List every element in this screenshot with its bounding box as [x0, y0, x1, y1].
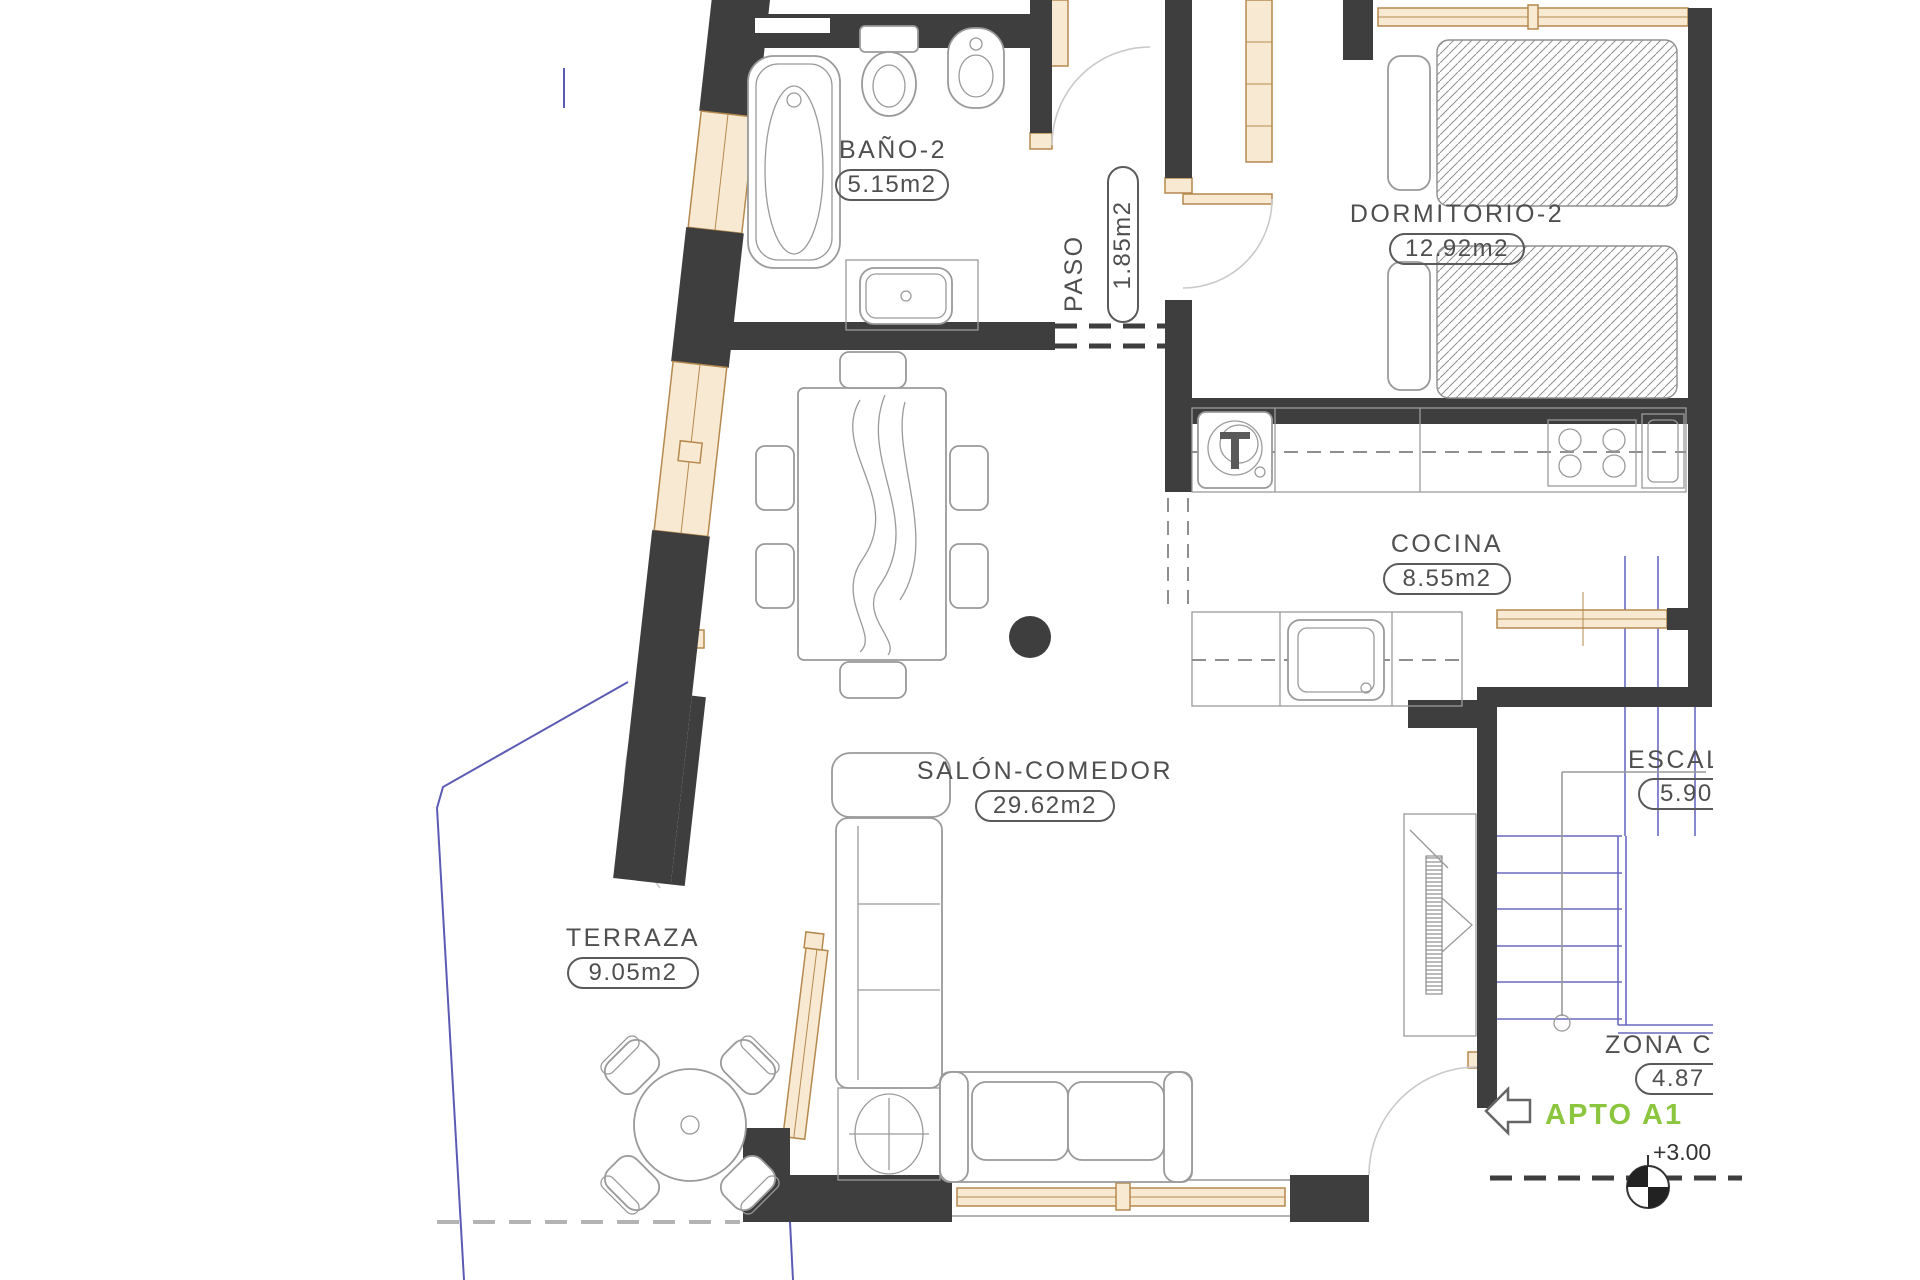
burner: [1603, 429, 1625, 451]
level-mark-text: +3.00: [1653, 1139, 1711, 1165]
wardrobe: [1246, 0, 1272, 162]
corner-table: [838, 1088, 940, 1180]
window-mullion: [1116, 1183, 1130, 1210]
column: [1009, 616, 1051, 658]
room-area-zona-comun: 4.87: [1652, 1065, 1705, 1092]
room-area-cocina: 8.55m2: [1402, 565, 1491, 592]
room-area-escalera: 5.90: [1660, 780, 1713, 807]
dining-table: [798, 388, 946, 660]
level-benchmark: +3.00: [1627, 1139, 1711, 1208]
room-label-dormitorio2: DORMITORIO-2: [1350, 200, 1564, 228]
wall-stair-north: [1477, 687, 1708, 707]
room-label-cocina: COCINA: [1391, 530, 1503, 558]
dining-chair: [756, 544, 794, 608]
wall-stub-north: [1343, 0, 1373, 60]
toilet-tank: [860, 26, 918, 52]
bed: [1388, 246, 1677, 398]
benchmark-quadrant: [1648, 1187, 1669, 1208]
wall-east: [1688, 8, 1712, 707]
dining-chair: [950, 544, 988, 608]
washer-detail: [1231, 437, 1239, 469]
apartment-label: APTO A1: [1545, 1099, 1683, 1131]
loveseat: [940, 1072, 1192, 1182]
tv-unit: [1404, 814, 1476, 1036]
dining-chair: [840, 352, 906, 388]
wall-stair-west: [1477, 687, 1497, 1108]
sink-unit: [1288, 620, 1384, 700]
basin-outer: [860, 268, 952, 324]
washing-machine: [1198, 412, 1272, 488]
pillow: [1388, 56, 1430, 190]
room-label-paso-text: PASO: [1060, 234, 1088, 312]
bathtub: [748, 56, 840, 268]
wall-cocina-south-stub: [1408, 700, 1478, 728]
wall-cocina-west: [1165, 300, 1192, 492]
burner: [1559, 429, 1581, 451]
room-label-paso: PASO: [1060, 234, 1088, 312]
room-area-dormitorio2: 12.92m2: [1405, 235, 1509, 262]
door-arc-entrance: [1369, 1067, 1477, 1175]
wall-bano-east: [1030, 0, 1052, 133]
room-label-escalera: ESCAL: [1628, 746, 1722, 774]
window-slider: [678, 441, 702, 463]
bathtub-outer: [748, 56, 840, 268]
room-label-terraza: TERRAZA: [566, 924, 700, 952]
table-top: [798, 388, 946, 660]
boundary-tick-bottom: [790, 1222, 793, 1280]
dining-chair: [950, 446, 988, 510]
terrace-table: [634, 1069, 746, 1181]
terrace-furniture: [597, 1032, 784, 1219]
door-leaf: [1183, 194, 1272, 204]
wall-niche: [755, 18, 830, 33]
sofa-body: [836, 818, 942, 1088]
wall-salon-south-east: [1290, 1175, 1369, 1222]
room-label-salon: SALÓN-COMEDOR: [917, 756, 1173, 785]
tv-screen: [1426, 856, 1442, 994]
wall-bano-south: [688, 322, 1055, 350]
wall-dormitorio-west: [1165, 0, 1192, 178]
room-label-bano2: BAÑO-2: [839, 135, 947, 164]
toilet: [860, 26, 918, 116]
handrail-post: [1554, 1015, 1570, 1031]
pillow: [1388, 262, 1430, 390]
door-arc-dormitorio: [1183, 199, 1272, 288]
bidet: [948, 28, 1004, 108]
bidet-body: [948, 28, 1004, 108]
door-jamb: [1165, 178, 1192, 193]
door-jamb: [804, 932, 824, 950]
room-area-terraza: 9.05m2: [588, 959, 677, 986]
loveseat-arm: [1164, 1072, 1192, 1182]
door-jamb: [1030, 133, 1052, 149]
loveseat-arm: [940, 1072, 968, 1182]
dining-chair: [840, 662, 906, 698]
floor-plan-svg: BAÑO-2 5.15m2 PASO 1.85m2 DORMITORIO-2 1…: [0, 0, 1920, 1280]
bed: [1388, 40, 1677, 206]
dining-chair: [756, 446, 794, 510]
window-mullion: [1528, 5, 1538, 29]
bed-duvet: [1437, 246, 1677, 398]
benchmark-quadrant: [1627, 1166, 1648, 1187]
kitchen-counter-south: [1192, 612, 1462, 706]
clipped-labels: ESCAL 5.90 ZONA C 4.87: [1605, 746, 1759, 1094]
room-area-salon: 29.62m2: [993, 792, 1097, 819]
room-area-bano2: 5.15m2: [847, 171, 936, 198]
loveseat-cushion: [1068, 1082, 1164, 1160]
washbasin: [846, 260, 978, 330]
floor-plan: BAÑO-2 5.15m2 PASO 1.85m2 DORMITORIO-2 1…: [0, 0, 1920, 1280]
wardrobe-body: [1246, 0, 1272, 162]
window-salon-terraza: [781, 932, 830, 1139]
door-jamb: [1050, 0, 1068, 66]
sofa-chaise: [832, 753, 950, 1088]
room-label-zona-comun: ZONA C: [1605, 1031, 1713, 1059]
loveseat-cushion: [972, 1082, 1068, 1160]
area-pill-paso: 1.85m2: [1108, 167, 1138, 322]
room-area-paso: 1.85m2: [1109, 200, 1136, 289]
sink-outer: [1288, 620, 1384, 700]
handrail: [1554, 772, 1706, 1031]
bed-duvet: [1437, 40, 1677, 206]
burner: [1559, 455, 1581, 477]
burner: [1603, 455, 1625, 477]
wall-window-stub: [1667, 608, 1688, 630]
tv-mount: [1442, 898, 1472, 952]
